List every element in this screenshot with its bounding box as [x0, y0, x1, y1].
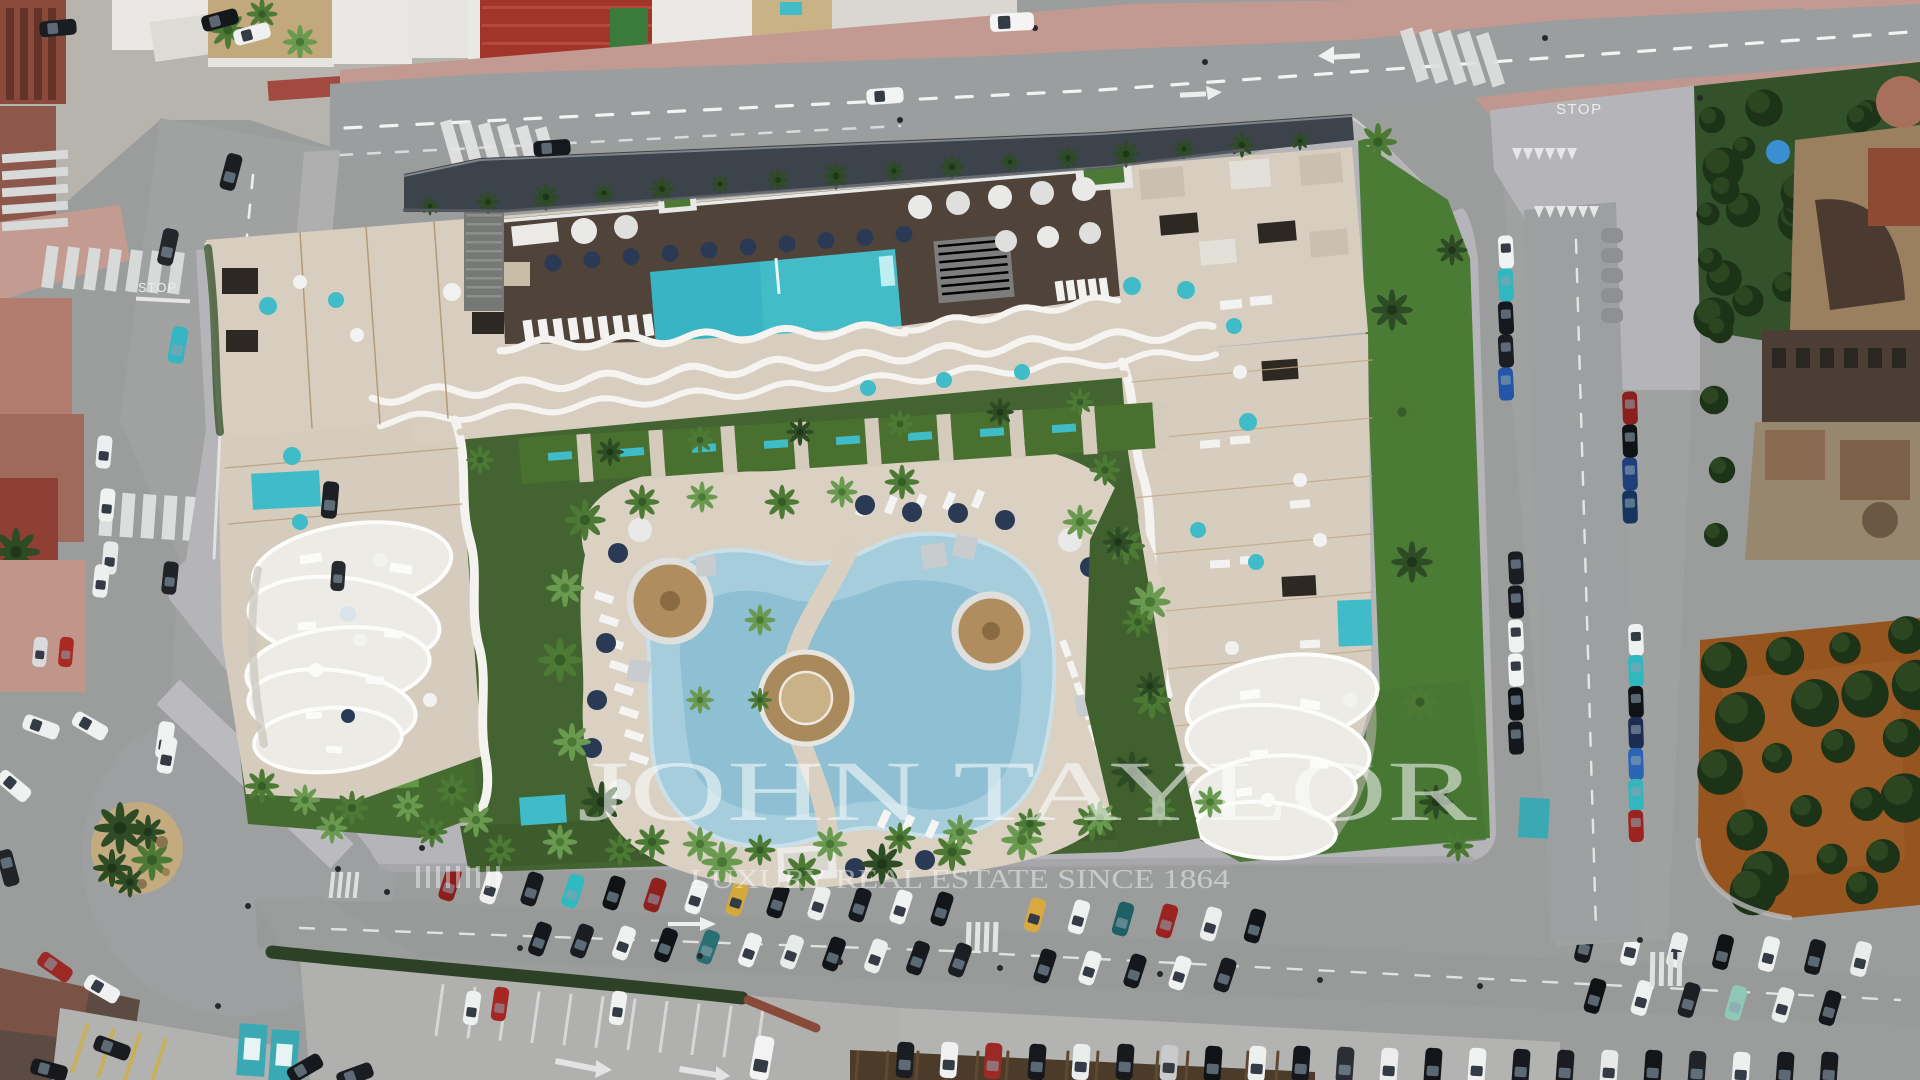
svg-text:LUXURY REAL ESTATE SINCE 1864: LUXURY REAL ESTATE SINCE 1864 — [690, 864, 1231, 894]
svg-text:STOP: STOP — [1556, 101, 1603, 118]
svg-text:JOHN TAYLOR: JOHN TAYLOR — [577, 743, 1478, 839]
svg-text:STOP: STOP — [138, 280, 177, 295]
